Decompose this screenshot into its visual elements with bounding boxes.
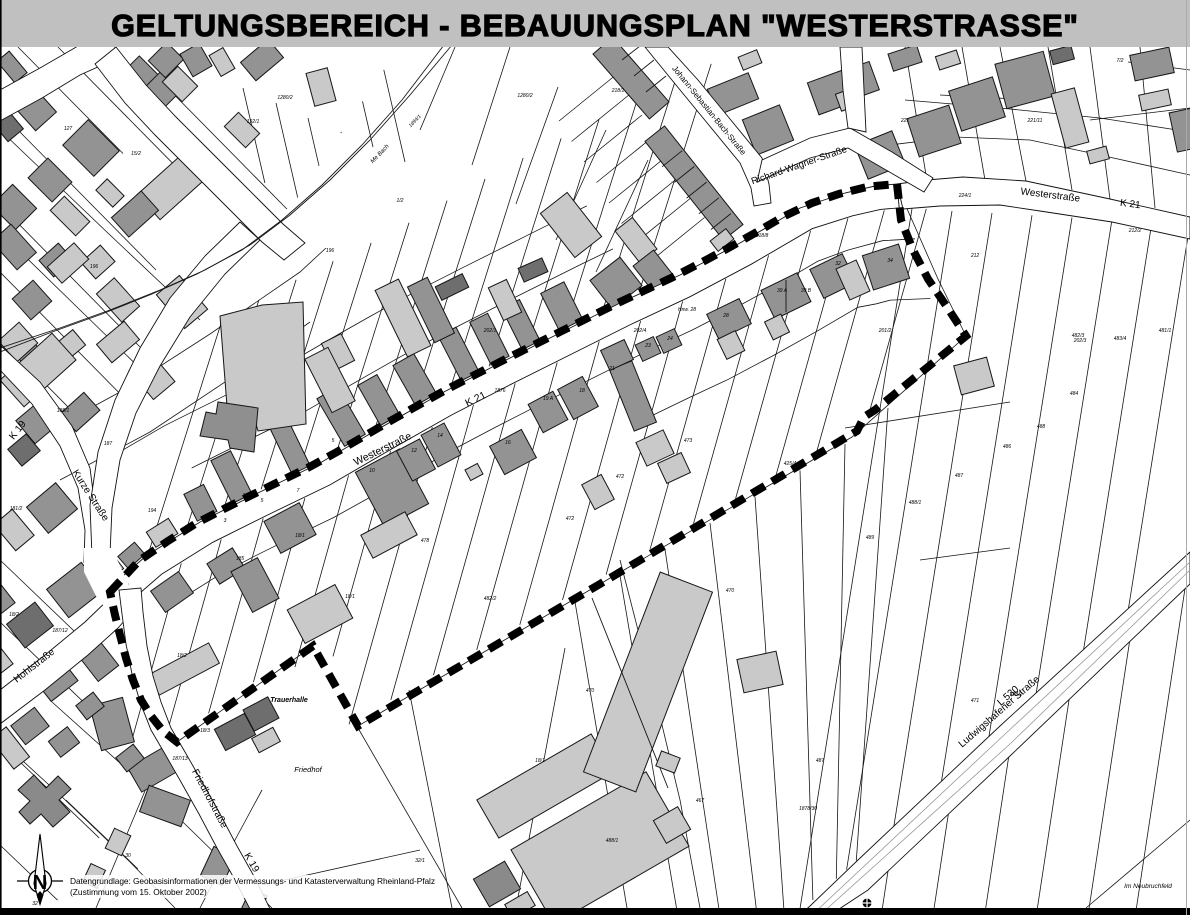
svg-text:488: 488 [1037,424,1046,430]
svg-text:481/1: 481/1 [1159,328,1172,334]
svg-text:(Zustimmung vom 15. Oktober 20: (Zustimmung vom 15. Oktober 2002) [70,887,207,897]
svg-text:18/1: 18/1 [345,594,355,600]
svg-text:212: 212 [970,253,980,259]
svg-text:5: 5 [261,498,264,504]
svg-text:484: 484 [1070,391,1079,397]
svg-text:18/2: 18/2 [9,612,19,618]
svg-text:472: 472 [566,516,575,522]
svg-text:472: 472 [616,474,625,480]
svg-text:5: 5 [332,438,335,444]
svg-text:488/1: 488/1 [909,500,922,506]
svg-text:218/1: 218/1 [611,88,625,94]
svg-text:202/4: 202/4 [633,328,647,334]
svg-text:224/1: 224/1 [958,193,972,199]
svg-text:30: 30 [125,853,131,859]
svg-text:488/1: 488/1 [606,838,619,844]
svg-text:218/8: 218/8 [755,233,769,239]
svg-text:39 B: 39 B [801,288,812,294]
svg-text:7: 7 [297,488,300,494]
svg-text:188/1: 188/1 [57,408,70,414]
svg-text:28: 28 [722,313,729,319]
svg-text:181/2: 181/2 [10,506,23,512]
svg-text:N: N [33,872,47,894]
svg-text:1878/30: 1878/30 [799,806,817,812]
svg-text:Friedhof: Friedhof [294,765,322,774]
svg-text:21: 21 [608,366,615,372]
svg-text:18/2: 18/2 [177,653,187,659]
svg-text:1876: 1876 [494,388,505,394]
svg-text:1280/2: 1280/2 [517,93,533,99]
svg-text:192/1: 192/1 [247,119,260,125]
svg-text:487: 487 [816,758,825,764]
svg-text:473: 473 [684,438,693,444]
svg-text:471: 471 [971,698,980,704]
svg-text:196: 196 [326,248,335,254]
svg-text:185: 185 [236,556,245,562]
svg-text:470: 470 [726,588,735,594]
svg-text:221: 221 [900,118,910,124]
svg-text:18/1: 18/1 [295,533,305,539]
svg-text:19 A: 19 A [543,396,554,402]
svg-text:187: 187 [104,441,113,447]
svg-text:Datengrundlage: Geobasisinform: Datengrundlage: Geobasisinformationen de… [70,876,435,886]
svg-text:202/3: 202/3 [1073,338,1087,344]
svg-text:425/4: 425/4 [784,461,797,467]
svg-text:478: 478 [421,538,430,544]
svg-text:486: 486 [1003,444,1012,450]
svg-text:32: 32 [32,901,38,907]
svg-text:18/1: 18/1 [535,758,545,764]
svg-text:18/3: 18/3 [200,728,210,734]
svg-text:478/2: 478/2 [1010,692,1023,698]
svg-text:489: 489 [866,535,875,541]
svg-text:467: 467 [696,798,705,804]
svg-text:201/2: 201/2 [878,328,892,334]
svg-text:487: 487 [955,473,964,479]
svg-text:483/4: 483/4 [1114,336,1127,342]
svg-text:14: 14 [437,433,443,439]
svg-text:212/2: 212/2 [1128,228,1142,234]
svg-text:470: 470 [586,688,595,694]
svg-text:202/1: 202/1 [483,328,497,334]
svg-text:196: 196 [90,264,99,270]
svg-text:34: 34 [887,258,893,264]
svg-text:187/22: 187/22 [242,493,258,499]
svg-text:1280/2: 1280/2 [277,95,293,101]
svg-text:Hnw. 28: Hnw. 28 [678,307,696,313]
svg-text:221/11: 221/11 [1027,118,1043,124]
svg-text:32: 32 [835,261,841,267]
svg-text:18: 18 [579,388,585,394]
svg-text:10: 10 [369,468,375,474]
svg-text:GELTUNGSBEREICH - BEBAUUNGSPLA: GELTUNGSBEREICH - BEBAUUNGSPLAN "WESTERS… [111,9,1079,43]
svg-text:Im Neubruchfeld: Im Neubruchfeld [1124,883,1172,890]
svg-text:194: 194 [148,508,157,514]
svg-text:23: 23 [644,343,651,349]
svg-text:39 A: 39 A [777,288,788,294]
svg-text:16: 16 [505,440,511,446]
svg-text:3: 3 [224,518,227,524]
svg-text:482/2: 482/2 [484,596,497,602]
svg-text:127: 127 [64,126,73,132]
svg-text:187/13: 187/13 [172,756,188,762]
svg-text:12: 12 [411,448,417,454]
svg-text:15/2: 15/2 [131,151,141,157]
svg-text:187/12: 187/12 [52,628,68,634]
svg-text:32/1: 32/1 [415,858,425,864]
svg-text:Trauerhalle: Trauerhalle [270,697,308,704]
svg-text:24: 24 [666,336,673,342]
svg-text:1/2: 1/2 [397,198,404,204]
svg-text:7/2: 7/2 [1117,58,1124,64]
